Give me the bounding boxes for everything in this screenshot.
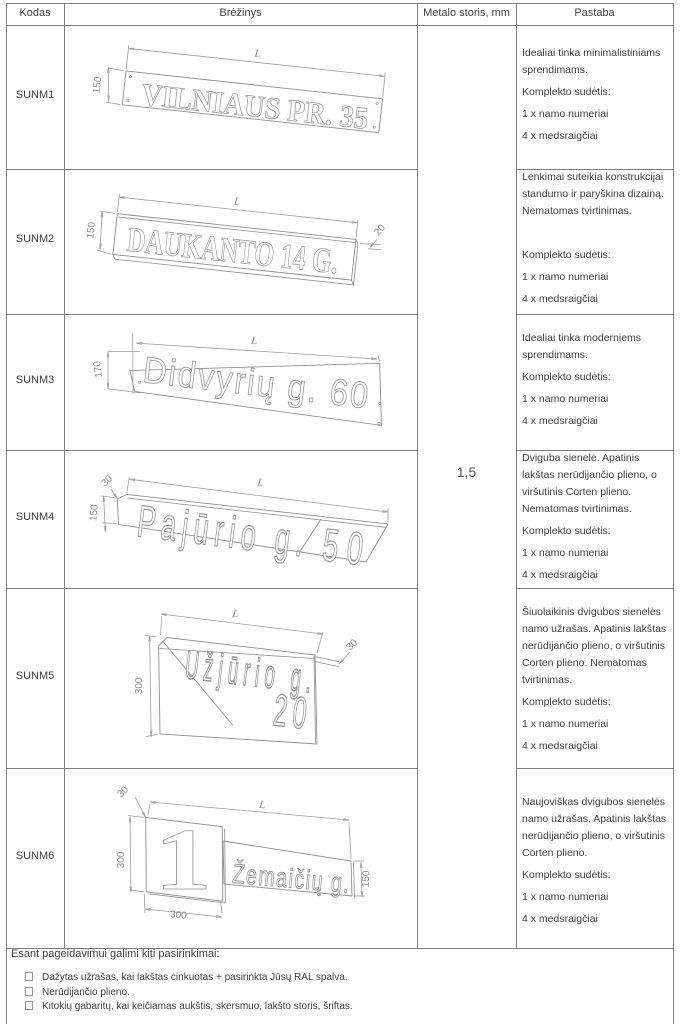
svg-text:30: 30 [115,784,131,800]
svg-text:L: L [232,195,240,208]
svg-text:30: 30 [99,473,115,489]
svg-text:30: 30 [344,637,360,653]
svg-text:L: L [256,477,265,490]
svg-text:20: 20 [372,222,388,238]
svg-text:L: L [258,799,266,812]
svg-text:L: L [250,335,258,347]
svg-text:L: L [253,48,261,61]
svg-text:150: 150 [361,870,373,887]
svg-text:150: 150 [85,221,98,239]
svg-text:1: 1 [154,811,212,909]
svg-text:300: 300 [116,851,127,868]
svg-text:170: 170 [92,360,105,378]
svg-text:300: 300 [169,909,187,922]
svg-text:150: 150 [88,504,100,522]
svg-text:150: 150 [91,76,104,94]
svg-text:L: L [231,608,240,621]
svg-text:300: 300 [134,677,145,694]
